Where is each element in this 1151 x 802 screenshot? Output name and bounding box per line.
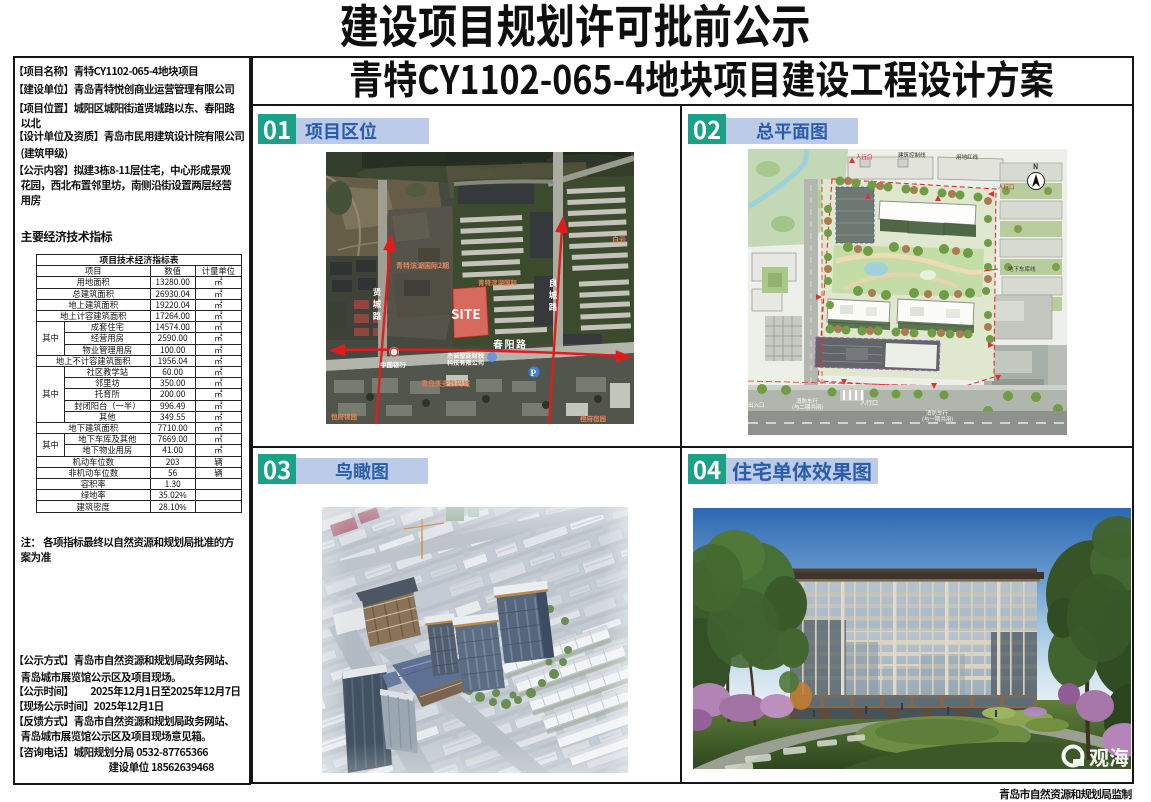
svg-text:地下车库线: 地下车库线 [1008,265,1036,273]
svg-text:用地红线: 用地红线 [956,153,979,161]
svg-text:人行口: 人行口 [998,183,1015,191]
svg-text:建筑控制线: 建筑控制线 [898,151,926,159]
svg-text:科技有限公司: 科技有限公司 [447,358,484,367]
svg-text:中国银行: 中国银行 [380,359,407,369]
svg-text:青岛天安数码城: 青岛天安数码城 [421,379,470,389]
svg-text:SITE: SITE [451,303,481,323]
svg-text:青特滨湖国际: 青特滨湖国际 [478,277,518,287]
svg-text:人行口: 人行口 [856,153,873,161]
svg-text:橙府宿园: 橙府宿园 [580,413,607,423]
svg-text:良城路: 良城路 [547,277,559,313]
svg-text:贤城路: 贤城路 [371,286,383,322]
svg-text:青特滨湖国际2期: 青特滨湖国际2期 [396,261,449,271]
svg-text:出入口: 出入口 [748,401,765,409]
svg-text:恒府锦园: 恒府锦园 [331,411,358,421]
svg-text:N: N [1033,162,1038,172]
svg-text:(与二期共用): (与二期共用) [792,403,823,411]
svg-text:(与一期共用): (与一期共用) [922,415,953,423]
svg-text:P: P [531,366,537,379]
svg-text:人行口: 人行口 [860,398,878,407]
svg-text:观海: 观海 [1089,742,1129,769]
svg-text:春阳路: 春阳路 [493,336,528,351]
svg-text:白云: 白云 [612,235,626,245]
